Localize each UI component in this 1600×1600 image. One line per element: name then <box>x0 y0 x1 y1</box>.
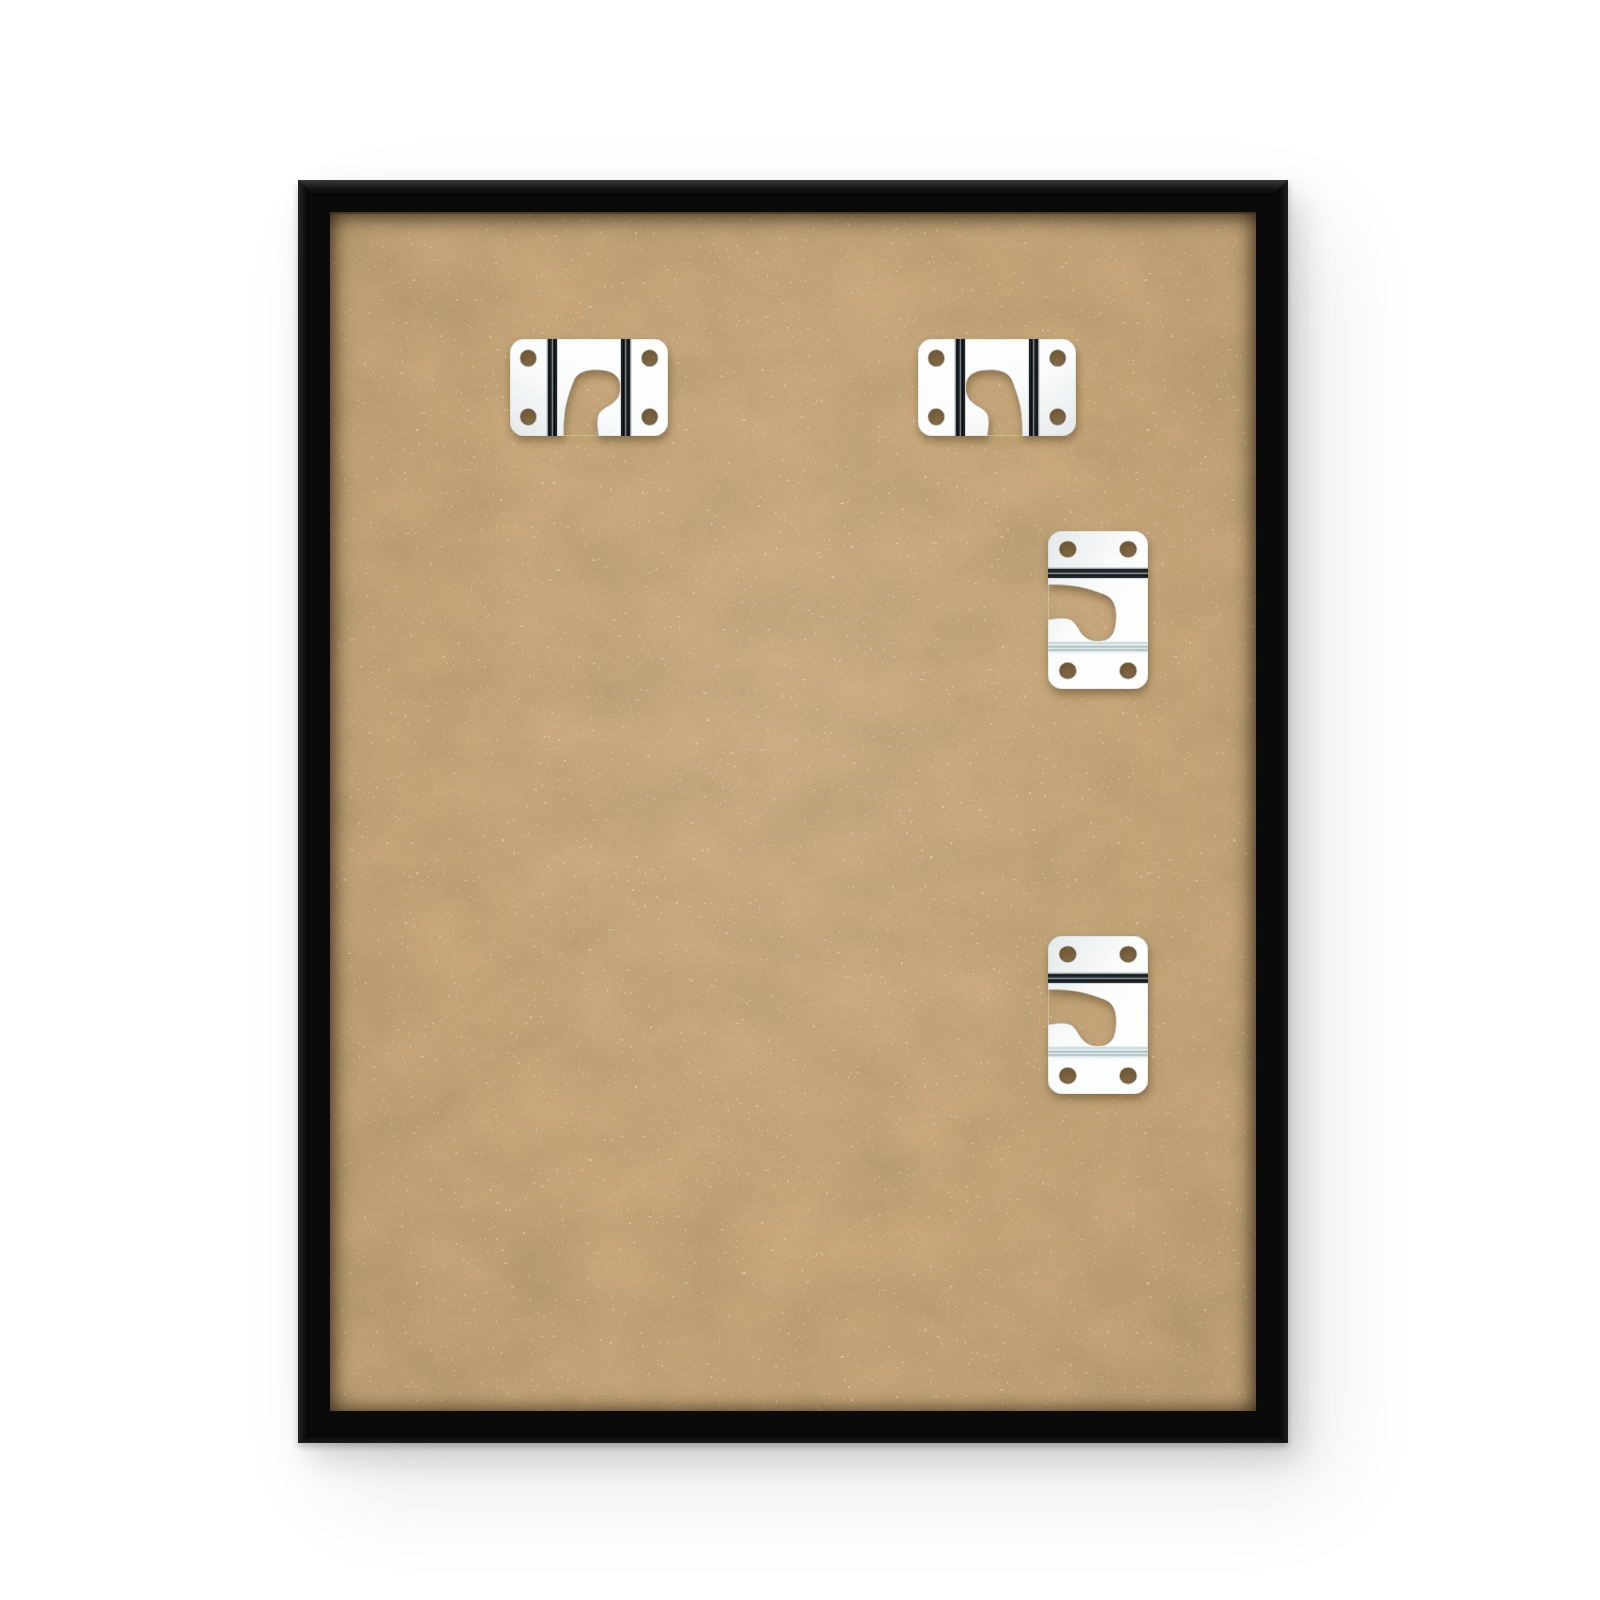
brackets-layer <box>0 0 1600 1600</box>
hanger-bracket-bottom-right <box>1048 936 1148 1094</box>
frame-back-photo <box>0 0 1600 1600</box>
bend-line <box>1028 339 1039 436</box>
bend-line-reflective <box>1048 641 1148 654</box>
hanger-bracket-middle-right <box>1048 531 1148 689</box>
hanger-bracket-top-right <box>918 339 1076 436</box>
bend-line <box>620 339 631 436</box>
bend-line <box>1048 973 1148 984</box>
hanger-bracket-top-left <box>510 339 668 436</box>
bend-line <box>547 339 558 436</box>
bend-line-reflective <box>1048 1046 1148 1059</box>
bend-line <box>1048 568 1148 579</box>
bend-line <box>955 339 966 436</box>
